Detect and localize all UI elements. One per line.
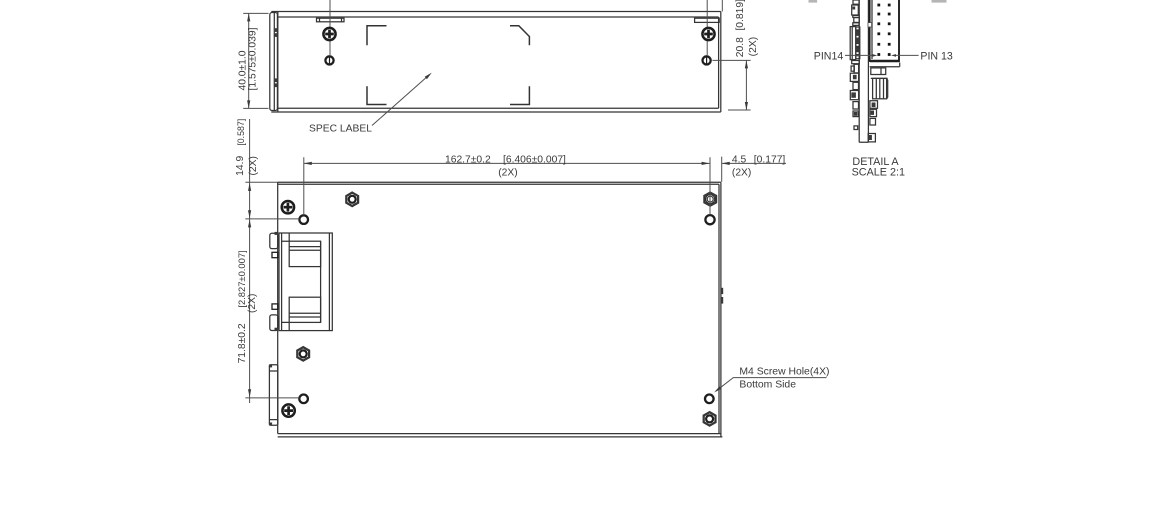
svg-text:[6.406±0.007]: [6.406±0.007]: [503, 154, 566, 165]
svg-text:M4 Screw Hole(4X): M4 Screw Hole(4X): [739, 366, 829, 377]
svg-text:(2X): (2X): [732, 167, 751, 178]
svg-text:[1.575±0.039]: [1.575±0.039]: [247, 27, 258, 90]
svg-text:PIN 13: PIN 13: [920, 50, 952, 62]
svg-text:Bottom Side: Bottom Side: [739, 380, 796, 391]
svg-text:71.8±0.2: 71.8±0.2: [237, 323, 248, 363]
svg-text:(2X): (2X): [247, 294, 258, 313]
svg-text:SPEC LABEL: SPEC LABEL: [309, 124, 372, 135]
svg-text:4.5: 4.5: [732, 154, 747, 165]
svg-text:SCALE 2:1: SCALE 2:1: [852, 166, 905, 178]
svg-text:(2X): (2X): [248, 156, 259, 175]
svg-text:14.9: 14.9: [235, 156, 246, 176]
svg-text:20.8: 20.8: [735, 37, 746, 57]
svg-text:(2X): (2X): [748, 37, 759, 56]
svg-text:[0.587]: [0.587]: [236, 119, 246, 146]
svg-text:[0.819]: [0.819]: [735, 0, 746, 31]
svg-text:[0.177]: [0.177]: [754, 154, 786, 165]
svg-text:(2X): (2X): [498, 167, 517, 178]
svg-text:PIN14: PIN14: [814, 50, 844, 62]
svg-text:[2.827±0.007]: [2.827±0.007]: [236, 250, 247, 307]
svg-text:162.7±0.2: 162.7±0.2: [445, 154, 491, 165]
